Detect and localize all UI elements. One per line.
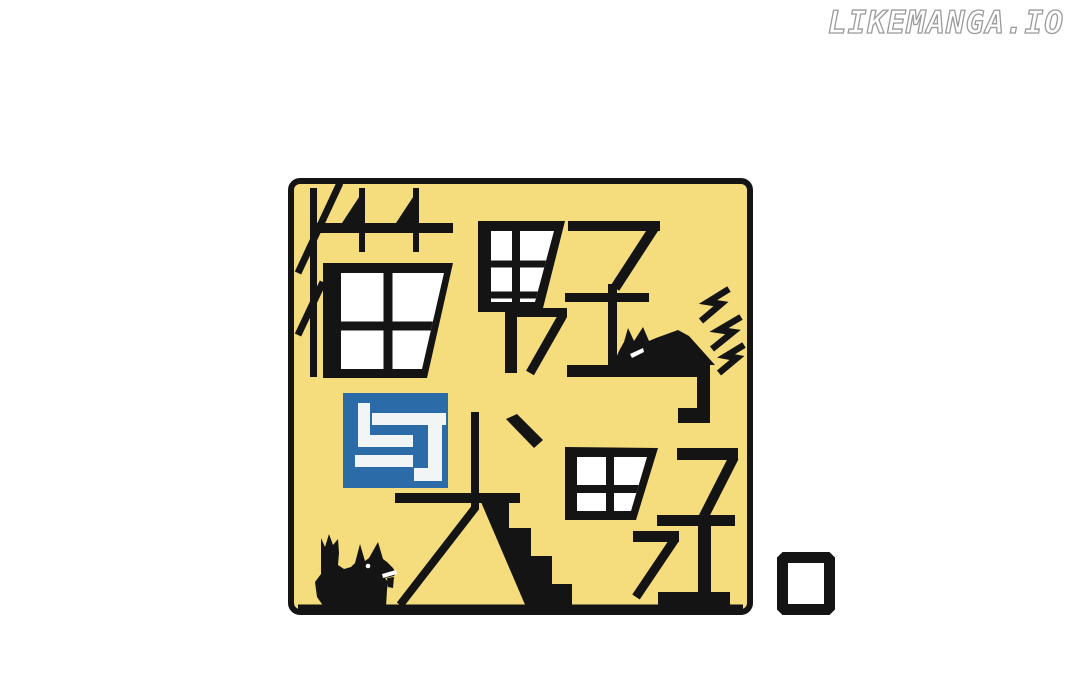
logo-connector-box [343, 393, 448, 488]
cover-logo-svg [288, 178, 848, 615]
dog-tongue [387, 577, 394, 588]
reader-page: LIKEMANGA.IO [0, 0, 1080, 675]
dog-eye [366, 564, 371, 569]
site-watermark: LIKEMANGA.IO [828, 5, 1064, 41]
period-square-mark [783, 558, 830, 610]
manga-cover-image[interactable] [288, 178, 848, 615]
